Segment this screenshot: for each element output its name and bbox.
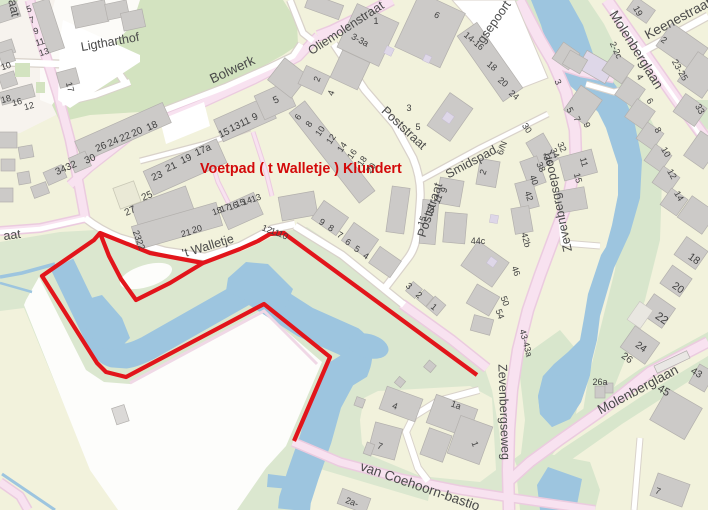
svg-text:3: 3: [406, 103, 411, 113]
svg-text:1: 1: [373, 16, 378, 26]
svg-text:5: 5: [415, 122, 420, 132]
svg-text:aat: aat: [2, 227, 22, 243]
svg-text:26a: 26a: [592, 377, 607, 387]
svg-text:44c: 44c: [471, 236, 486, 246]
